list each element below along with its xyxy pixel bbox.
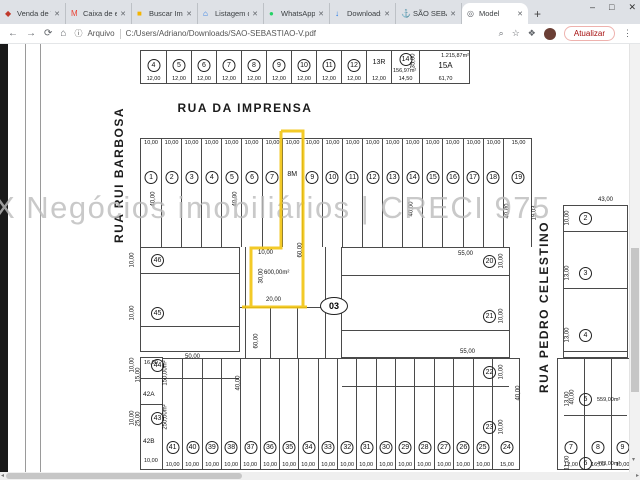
tab-label: Caixa de entra — [83, 9, 117, 18]
tab-close-icon[interactable]: ✕ — [517, 10, 523, 18]
browser-tab-strip: ◆Venda de Terr✕MCaixa de entra✕■Buscar I… — [0, 0, 640, 24]
map-dim-label: 40,00 — [516, 385, 522, 400]
lot-width-dim: 12,00 — [142, 76, 165, 82]
east-lot-block: 210,00313,00413,00513,00559,00m²611,0047… — [563, 205, 628, 358]
lot-width-dim: 15,00 — [505, 140, 532, 146]
lot-side-dim: 13,00 — [565, 327, 571, 342]
lot-number: 4 — [205, 171, 218, 184]
lot-cell-12: 12,0012 — [341, 51, 366, 83]
lot-number: 9 — [306, 171, 319, 184]
lot-side-dim: 10,00 — [499, 309, 505, 324]
lot-number: 3 — [579, 267, 592, 280]
vertical-scrollbar[interactable]: ▾ — [629, 44, 640, 472]
extensions-icon[interactable]: ❖ — [528, 28, 536, 39]
lot-number: 40 — [186, 441, 199, 454]
lot-number: 10 — [298, 59, 311, 72]
east-mid-lot-block: 2010,002110,002210,002310,00 — [341, 247, 510, 358]
road-edge-line — [40, 44, 41, 472]
browser-tab-anchor[interactable]: ⚓SÃO SEBASTI✕ — [396, 3, 462, 24]
lot-width-dim: 15,00 — [494, 462, 520, 468]
lot-area: 1.215,87m² — [441, 53, 469, 59]
tab-label: SÃO SEBASTI — [413, 9, 447, 18]
lot-number: 32 — [341, 441, 354, 454]
map-dim-label: 600,00m² — [264, 270, 289, 276]
profile-avatar[interactable] — [544, 28, 556, 40]
lot-number: 34 — [302, 441, 315, 454]
lot42-dim: 15,00 — [136, 367, 142, 382]
tab-close-icon[interactable]: ✕ — [318, 10, 324, 18]
dim-label-eastmid-top: 55,00 — [458, 251, 473, 257]
lot-width-dim: 10,00 — [464, 140, 482, 146]
lot-width-dim: 10,00 — [416, 462, 433, 468]
lot-width-dim: 10,00 — [281, 462, 298, 468]
lot-cell-8: 12,008 — [241, 51, 266, 83]
whatsapp-icon: ● — [269, 10, 278, 18]
map-dim-label: 10,00 — [258, 250, 273, 256]
lot-number: 2 — [579, 212, 592, 225]
scroll-down-icon[interactable]: ▾ — [632, 456, 635, 463]
home-icon[interactable]: ⌂ — [60, 28, 66, 39]
back-icon[interactable]: ← — [8, 28, 18, 39]
lot-width-dim: 10,00 — [484, 140, 502, 146]
lot-row-3: 313,00 — [564, 258, 627, 289]
tabs-holder: ◆Venda de Terr✕MCaixa de entra✕■Buscar I… — [0, 3, 528, 24]
lot-area: 473,00m² — [597, 461, 620, 467]
lot-cell-37: 10,0037 — [240, 359, 259, 469]
browser-tab-yellow-site[interactable]: ■Buscar Imóve✕ — [132, 3, 198, 24]
vertical-scroll-thumb[interactable] — [631, 248, 639, 392]
lot-number: 4 — [147, 59, 160, 72]
lot-number: 13R — [373, 59, 386, 66]
lot-width-dim: 61,70 — [422, 76, 469, 82]
lot-cell-10: 12,0010 — [291, 51, 316, 83]
lot-number: 5 — [173, 59, 186, 72]
downloads-icon: ↓ — [335, 10, 344, 18]
map-dim-label: 40,00 — [570, 389, 576, 404]
lot-number: 15A — [438, 61, 452, 70]
minimize-icon[interactable]: – — [590, 2, 595, 13]
lot-width-dim: 10,00 — [324, 140, 342, 146]
pdf-page: X Negócios imobiliários | CRECI 975 RUA … — [0, 44, 630, 472]
lot-number: 46 — [151, 254, 164, 267]
lot-row-45: 4510,00 — [141, 301, 239, 327]
lot-number: 19 — [512, 171, 525, 184]
lot-row-4: 413,00 — [564, 320, 627, 352]
parcel-line — [270, 307, 271, 358]
lot-side-dim: 10,00 — [499, 420, 505, 435]
lot-width-dim: 10,00 — [444, 140, 462, 146]
lot-row-21: 2110,00 — [342, 304, 509, 332]
lot-width-dim: 10,00 — [304, 140, 322, 146]
lot42-dim: 150,00m² — [163, 360, 169, 385]
lot-number: 5 — [579, 393, 592, 406]
lot-number: 17 — [467, 171, 480, 184]
lot-width-dim: 10,00 — [203, 462, 220, 468]
lot-cell-15A: 61,7015A1.215,87m² — [419, 51, 471, 83]
road-edge-line — [25, 44, 26, 472]
lot-width-dim: 10,00 — [163, 140, 181, 146]
lot-width-dim: 10,00 — [404, 140, 422, 146]
lot-cell-9: 12,009 — [266, 51, 291, 83]
browser-tab-whatsapp[interactable]: ●WhatsApp✕ — [264, 3, 330, 24]
lot-width-dim: 12,00 — [368, 76, 390, 82]
tab-label: Listagem de i — [215, 9, 249, 18]
lot-cell-34: 10,0034 — [298, 359, 317, 469]
map-dim-label: 35,00 — [411, 53, 417, 68]
block-number-03: 03 — [320, 297, 348, 315]
lot-side-dim: 11,00 — [564, 456, 570, 471]
lot-row-46: 4610,00 — [141, 248, 239, 274]
lot-width-dim: 12,00 — [343, 76, 365, 82]
lot-number: 15 — [426, 171, 439, 184]
new-tab-button[interactable]: + — [534, 7, 541, 21]
lot-width-dim: 10,00 — [339, 462, 356, 468]
lot-number: 12 — [348, 59, 361, 72]
lot-number: 36 — [263, 441, 276, 454]
lot-width-dim: 12,00 — [243, 76, 265, 82]
address-scheme: Arquivo — [87, 29, 114, 38]
lot-width-dim: 10,00 — [364, 140, 382, 146]
lot-number: 3 — [185, 171, 198, 184]
lot42-divider — [141, 404, 162, 405]
lot-side-dim: 10,00 — [130, 305, 136, 320]
lot-number: 20 — [483, 255, 496, 268]
listing-pin-icon: ◆ — [5, 10, 14, 18]
lot-row-23: 2310,00 — [342, 415, 509, 443]
lot-cell-11: 12,0011 — [316, 51, 341, 83]
lot-width-dim: 12,00 — [168, 76, 190, 82]
lot42-bottom-dim: 10,00 — [144, 458, 158, 464]
lot-number: 33 — [321, 441, 334, 454]
lot-row-6: 611,00473,00m²43,00 — [564, 448, 627, 472]
reload-icon[interactable]: ⟳ — [44, 28, 52, 39]
zoom-icon[interactable]: ⌕ — [499, 28, 504, 39]
yellow-site-icon: ■ — [137, 10, 146, 18]
dim-label-west-bottom: 50,00 — [185, 354, 200, 360]
lot-number: 45 — [151, 307, 164, 320]
lot-width-dim: 10,00 — [474, 462, 491, 468]
browser-tab-gmail[interactable]: MCaixa de entra✕ — [66, 3, 132, 24]
lot-number: 22 — [483, 366, 496, 379]
maximize-icon[interactable]: □ — [609, 2, 614, 13]
lot-number: 5 — [225, 171, 238, 184]
browser-tab-home-site[interactable]: ⌂Listagem de i✕ — [198, 3, 264, 24]
lot-number: 2 — [165, 171, 178, 184]
lot-width-dim: 10,00 — [183, 140, 201, 146]
lot-width-dim: 10,00 — [261, 462, 278, 468]
browser-toolbar: ← → ⟳ ⌂ ⓘ Arquivo C:/Users/Adriano/Downl… — [0, 24, 640, 44]
lot-width-dim: 10,00 — [300, 462, 317, 468]
horizontal-scrollbar[interactable]: ◂ ▸ — [0, 472, 640, 480]
lot-width-dim: 12,00 — [268, 76, 290, 82]
west-lot-block: 4610,004510,004410,004310,00 — [140, 247, 240, 352]
browser-tab-listing-pin[interactable]: ◆Venda de Terr✕ — [0, 3, 66, 24]
lot-number: 23 — [483, 421, 496, 434]
lot-row-22: 2210,00 — [342, 359, 509, 387]
lot-width-dim: 10,00 — [164, 462, 182, 468]
lot-number: 28 — [418, 441, 431, 454]
lot-number: 26 — [457, 441, 470, 454]
dim-label-eastmid-bottom: 55,00 — [460, 349, 475, 355]
watermark: X Negócios imobiliários | CRECI 975 — [0, 190, 551, 226]
lot-number: 24 — [500, 441, 513, 454]
lot-width-dim: 12,00 — [218, 76, 240, 82]
tab-label: Buscar Imóve — [149, 9, 183, 18]
lot-width-dim: 10,00 — [378, 462, 395, 468]
lot-number: 6 — [198, 59, 211, 72]
lot-width-dim: 10,00 — [455, 462, 472, 468]
lot-cell-4: 12,004 — [141, 51, 166, 83]
bookmark-star-icon[interactable]: ☆ — [512, 28, 520, 39]
lot-number: 27 — [437, 441, 450, 454]
lot-number: 30 — [379, 441, 392, 454]
lot-width-dim: 12,00 — [193, 76, 215, 82]
lot-width-dim: 10,00 — [358, 462, 375, 468]
lot-cell-6: 12,006 — [191, 51, 216, 83]
address-bar[interactable]: ⓘ Arquivo C:/Users/Adriano/Downloads/SAO… — [74, 28, 490, 39]
lot-number: 10 — [326, 171, 339, 184]
lot-width-dim: 10,00 — [344, 140, 362, 146]
horizontal-scroll-thumb[interactable] — [6, 473, 242, 479]
parcel-line — [297, 307, 298, 358]
street-label-imprensa: RUA DA IMPRENSA — [150, 101, 340, 117]
map-dim-label: 40,00 — [236, 375, 242, 390]
lot-width-dim: 10,00 — [243, 140, 261, 146]
lot-number: 13 — [386, 171, 399, 184]
lot-width-dim: 10,00 — [242, 462, 259, 468]
info-icon[interactable]: ⓘ — [74, 28, 82, 39]
lot-width-dim: 10,00 — [184, 462, 201, 468]
lot-cell-36: 10,0036 — [260, 359, 279, 469]
lot-width-dim: 10,00 — [203, 140, 221, 146]
gmail-icon: M — [71, 10, 80, 18]
home-site-icon: ⌂ — [203, 10, 212, 18]
lot-side-dim: 10,00 — [499, 364, 505, 379]
lot-cell-7: 12,007 — [216, 51, 241, 83]
lot-number: 38 — [225, 441, 238, 454]
tab-close-icon[interactable]: ✕ — [54, 10, 60, 18]
map-dim-label: 60,00 — [254, 333, 260, 348]
browser-tab-downloads[interactable]: ↓Downloads✕ — [330, 3, 396, 24]
lot-number: 39 — [205, 441, 218, 454]
lot-width-dim: 10,00 — [223, 140, 241, 146]
lot-number: 8 — [248, 59, 261, 72]
map-dim-label: 60,00 — [298, 242, 304, 257]
page-edge — [0, 44, 8, 472]
lot-number: 14 — [406, 171, 419, 184]
lot-width-dim: 14,50 — [393, 76, 418, 82]
lot-number: 6 — [246, 171, 259, 184]
lot-row-2: 210,00 — [564, 206, 627, 232]
window-controls: – □ ✕ — [590, 2, 636, 13]
lot-number: 21 — [483, 310, 496, 323]
lot42-dim: 250,00m² — [163, 404, 169, 429]
lot-42-column: 16,0042A42B15,00150,00m²25,00250,00m²10,… — [140, 357, 163, 470]
lot-width-dim: 10,00 — [319, 462, 336, 468]
lot-area: 156,97m² — [393, 68, 416, 74]
lot-cell-33: 10,0033 — [318, 359, 337, 469]
lot-side-dim: 10,00 — [565, 210, 571, 225]
parcel-line — [245, 247, 246, 358]
lot-number: 8M — [287, 171, 297, 178]
address-divider — [120, 29, 121, 39]
browser-tab-globe[interactable]: ◎Model✕ — [462, 3, 528, 24]
anchor-icon: ⚓ — [401, 10, 410, 18]
lot-width-dim: 10,00 — [142, 140, 160, 146]
lot-width-dim: 10,00 — [283, 140, 301, 146]
lot42-dim: 25,00 — [136, 411, 142, 426]
lot-number: 6 — [579, 457, 592, 470]
lot-number: 7 — [223, 59, 236, 72]
tab-label: WhatsApp — [281, 9, 315, 18]
lot-number: 11 — [323, 59, 336, 72]
dim-label-east-top: 43,00 — [598, 197, 613, 203]
forward-icon[interactable]: → — [26, 28, 36, 39]
lot-width-dim: 12,00 — [318, 76, 340, 82]
lot-number: 1 — [145, 171, 158, 184]
lot-width-dim: 10,00 — [424, 140, 442, 146]
lot-number: 16 — [446, 171, 459, 184]
lot-number: 42A — [143, 391, 155, 398]
tab-label: Venda de Terr — [17, 9, 51, 18]
address-path: C:/Users/Adriano/Downloads/SAO-SEBASTIAO… — [126, 29, 316, 38]
lot-width-dim: 12,00 — [293, 76, 315, 82]
update-button[interactable]: Atualizar — [564, 26, 615, 41]
close-icon[interactable]: ✕ — [628, 2, 636, 13]
tab-close-icon[interactable]: ✕ — [120, 10, 126, 18]
menu-dots-icon[interactable]: ⋮ — [623, 28, 632, 39]
lot-side-dim: 10,00 — [130, 253, 136, 268]
lot-number: 11 — [346, 171, 359, 184]
lot-number: 37 — [244, 441, 257, 454]
lot-area: 559,00m² — [597, 397, 620, 403]
lot-number: 42B — [143, 438, 155, 445]
tab-close-icon[interactable]: ✕ — [450, 10, 456, 18]
lot-number: 25 — [476, 441, 489, 454]
scroll-left-icon[interactable]: ◂ — [1, 472, 4, 479]
lot-row-20: 2010,00 — [342, 248, 509, 276]
lot-cell-5: 12,005 — [166, 51, 191, 83]
lot-number: 9 — [273, 59, 286, 72]
lot-side-dim: 10,00 — [499, 253, 505, 268]
lot-width-dim: 10,00 — [263, 140, 281, 146]
tab-close-icon[interactable]: ✕ — [186, 10, 192, 18]
lot-number: 31 — [360, 441, 373, 454]
tab-close-icon[interactable]: ✕ — [252, 10, 258, 18]
tab-label: Model — [479, 9, 514, 18]
lot42-top-dim: 16,00 — [144, 360, 158, 366]
lot-width-dim: 10,00 — [397, 462, 414, 468]
lot-cell-13R: 12,0013R — [366, 51, 391, 83]
tab-label: Downloads — [347, 9, 381, 18]
map-dim-label: 20,00 — [266, 297, 281, 303]
lot-number: 4 — [579, 329, 592, 342]
lot-number: 18 — [487, 171, 500, 184]
lot-number: 7 — [266, 171, 279, 184]
lot-cell-35: 10,0035 — [279, 359, 298, 469]
scroll-right-icon[interactable]: ▸ — [636, 472, 639, 479]
lot-width-dim: 10,00 — [436, 462, 453, 468]
lot-number: 12 — [366, 171, 379, 184]
lot-width-dim: 10,00 — [223, 462, 240, 468]
lot-number: 41 — [166, 441, 179, 454]
lot-number: 35 — [283, 441, 296, 454]
lot-number: 29 — [399, 441, 412, 454]
top-lot-block: 12,00412,00512,00612,00712,00812,00912,0… — [140, 50, 470, 84]
globe-icon: ◎ — [467, 10, 476, 18]
lot-width-dim: 10,00 — [384, 140, 402, 146]
lot-side-dim: 13,00 — [565, 265, 571, 280]
tab-close-icon[interactable]: ✕ — [384, 10, 390, 18]
